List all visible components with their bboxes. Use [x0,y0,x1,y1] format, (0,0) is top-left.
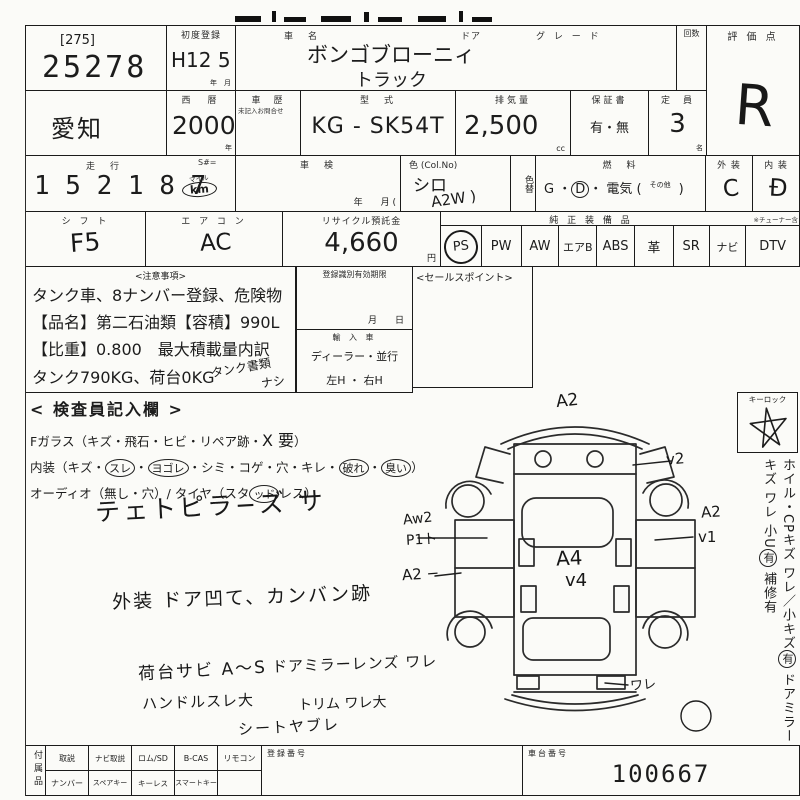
fuel-option-electric: ・ 電気 ( [589,182,641,197]
hand-circle-mark [681,701,711,731]
equip-abs: ABS [596,226,634,267]
shaken-label: 車 検 [236,156,400,171]
hand-note-bed: 荷台サビ A〜S [137,653,267,685]
pointer-a2v1 [655,537,693,540]
color-change-label: 色替 [511,160,535,208]
aircon-value: AC [199,229,232,257]
history-cell: 車 歴 未記入お問合せ [235,90,301,156]
diagram-label-left-aw2: Aw2 [402,510,433,529]
color-label: 色 (Col.No) [401,156,510,171]
expiry-unit: 月 日 [368,313,404,326]
car-name-cell: 車 名 ドア グ レ ー ド ボンゴブローニィ トラック [235,25,677,91]
fuel-option-other: その他 [642,181,679,189]
first-registration-cell: 初度登録 H12 5 年 月 [166,25,236,91]
acc-bcas: B-CAS [174,745,218,771]
interior-grade-label: 内 装 [753,156,799,171]
equip-dtv: DTV [745,226,799,267]
acc-remote: リモコン [217,745,262,771]
hand-pointer-lines [418,461,711,731]
model-cell: 型 式 KG - SK54T [300,90,456,156]
hand-note-exterior: 外装 ドア凹て、カンバン跡 [112,578,373,614]
interior-items-pre: 内装（キズ・ [30,460,105,475]
notice-line-2: 【品名】第二石油類【容積】990L [32,309,279,333]
shaken-cell: 車 検 年 月 ( [235,155,401,212]
interior-sep2: ・ [369,460,382,475]
count-cell: 回数 [676,25,707,91]
equip-pw: PW [481,226,521,267]
capacity-unit: 名 [696,143,703,153]
hand-note-trim: トリム ワレ大 [298,691,387,714]
mirror-left [476,447,510,483]
warranty-cell: 保証書 有・無 [570,90,649,156]
recycle-label: リサイクル預託金 [283,212,440,227]
diagram-label-left-a2: A2 − [401,564,439,585]
sidebar-circled-ari-1: 有 [778,650,796,668]
model-label: 型 式 [301,91,455,106]
sidebar-note-wheel: ホイル・CPキズ ワレ／小キズ [780,458,795,650]
notice-box: <注意事項> タンク車、8ナンバー登録、危険物 【品名】第二石油類【容積】990… [25,266,296,393]
score-value: R [733,73,776,141]
headrest-right [587,451,603,467]
cab-front [514,444,636,474]
warranty-label: 保証書 [571,91,648,106]
taillight-left [517,676,539,689]
lot-tag: [275] [60,33,95,48]
equip-navi: ナビ [709,226,746,267]
shift-value: F5 [69,227,101,258]
hand-note-handle: ハンドルスレ大 [142,689,255,714]
acc-smart-key: スマートキー [174,770,218,796]
shift-label: シ フ ト [26,212,145,227]
acc-rom-sd: ロム/SD [131,745,175,771]
prefecture-value: 愛知 [51,109,103,144]
equip-sr: SR [673,226,709,267]
model-value: KG - SK54T [301,114,455,139]
taillight-right [597,676,625,689]
first-registration-unit: 年 月 [210,78,231,88]
recycle-value: 4,660 [283,228,440,258]
car-name-line2: トラック [266,66,516,92]
wheel-front-left [452,485,484,517]
mileage-cell: 走 行 S#= 1 5 2 1 8 7 マイル km [25,155,236,212]
inspector-title: < 検査員記入欄 > [30,396,430,420]
fuel-option-d-circled: D [571,181,589,198]
chassis-number-box: 車台番号 100667 [522,745,800,796]
equip-leather: 革 [634,226,673,267]
hand-note-seat: シートヤブレ [238,713,341,739]
handle-options: 左H ・ 右H [297,372,412,388]
first-registration-value: H12 5 [171,48,231,72]
aircon-label: エ ア コ ン [146,212,282,227]
notice-line-4: タンク790KG、荷台0KG [32,364,215,388]
hand-note-mirror: ドアミラーレンズ ワレ [272,650,438,677]
wheel-rear-left [455,617,485,647]
page-left-edge [25,91,26,796]
shaken-unit: 年 月 ( [354,195,396,208]
interior-items-mid: ・シミ・コゲ・穴・キレ・ [189,460,339,475]
year-unit: 年 [225,143,232,153]
equip-ps-label: PS [452,238,469,254]
cutoff-title-strokes [235,6,565,22]
interior-grade-cell: 内 装 Đ [752,155,800,212]
capacity-cell: 定 員 3 名 [648,90,707,156]
headrest-left [535,451,551,467]
mileage-sub-label: S#= [198,158,216,167]
wheel-rear-right [649,616,681,648]
front-bumper-outer [501,427,649,444]
diagram-label-right-a2: A2 [700,502,721,521]
notice-title: <注意事項> [26,269,295,282]
prefecture-cell: 愛知 [25,90,167,156]
history-label: 車 歴 [236,91,300,106]
import-box: 輸 入 車 ディーラー・並行 左H ・ 右H [296,329,413,393]
displacement-cell: 排気量 2,500 cc [455,90,571,156]
registration-number-label: 登録番号 [267,748,307,759]
interior-circled-yogore: ヨゴレ [148,459,189,477]
acc-spare-key: スペアキー [88,770,132,796]
accessories-label: 付属品 [31,750,44,789]
equip-aw: AW [521,226,559,267]
sales-point-box: <セールスポイント> [412,266,533,388]
sales-point-label: <セールスポイント> [416,269,513,284]
warranty-value: 有・無 [571,117,648,136]
equip-ps: PS [441,226,481,267]
fuel-options: G ・D・ 電気 (その他) [544,178,684,198]
interior-sep1: ・ [135,460,148,475]
right-door-slit-2 [614,586,629,612]
equipment-cell: 純 正 装 備 品 ※チューナー含 PS PW AW エアB ABS 革 SR … [440,211,800,267]
dtv-note: ※チューナー含 [754,214,798,224]
exterior-grade-value: C [722,175,741,203]
acc-blank [217,770,262,796]
notice-line-1: タンク車、8ナンバー登録、危険物 [32,282,282,306]
acc-navi-manual: ナビ取説 [88,745,132,771]
keylock-box: キーロック [737,392,798,453]
capacity-label: 定 員 [649,91,706,106]
front-bumper-inner [508,434,642,449]
expiry-box: 登録識別有効期限 月 日 [296,266,413,330]
exterior-grade-cell: 外 装 C [705,155,753,212]
color-cell: 色 (Col.No) シロ A2W ) [400,155,511,212]
fuel-option-g: G ・ [544,182,571,197]
wheel-front-right [650,484,682,516]
score-cell: 評 価 点 R [706,25,800,156]
keylock-label: キーロック [738,394,797,405]
glass-hand-mark: X 要 [262,431,294,450]
ps-circled: PS [442,228,479,265]
mileage-km-label: km [190,182,210,196]
count-label: 回数 [677,26,706,39]
first-registration-label: 初度登録 [167,26,235,41]
fuel-paren-close: ) [679,182,684,197]
inspector-glass-line: Fガラス（キズ・飛石・ヒビ・リペア跡・X 要） [30,427,430,451]
right-door-slit-1 [616,539,631,566]
car-name-line1: ボンゴブローニィ [266,39,516,69]
year-cell: 西 暦 2000 年 [166,90,236,156]
exterior-grade-label: 外 装 [706,156,752,171]
cab-roof [522,498,613,547]
expiry-label: 登録識別有効期限 [297,267,412,280]
lot-cell: [275] 25278 [25,25,167,91]
inspector-interior-line: 内装（キズ・スレ・ヨゴレ・シミ・コゲ・穴・キレ・破れ・臭い） [30,457,430,477]
sidebar-note-repair: 補修有 [761,567,776,614]
equipment-row: PS PW AW エアB ABS 革 SR ナビ DTV [441,225,799,267]
interior-circled-nioi: 臭い [381,459,411,477]
chassis-number-label: 車台番号 [528,748,568,759]
registration-number-box: 登録番号 [261,745,523,796]
displacement-value: 2,500 [464,111,538,141]
truck-bed [523,618,610,660]
year-value: 2000 [172,111,236,140]
acc-number-plate: ナンバー [45,770,89,796]
history-note: 未記入お問合せ [238,105,284,115]
import-options: ディーラー・並行 [297,348,412,364]
mileage-value: 1 5 2 1 8 7 [34,171,206,201]
rear-bumper-inner [512,695,638,704]
notice-line-3: 【比重】0.800 最大積載量内訳 [32,336,270,360]
score-label: 評 価 点 [707,26,799,43]
interior-circled-sure: スレ [105,459,135,477]
glass-items: Fガラス（キズ・飛石・ヒビ・リペア跡・ [30,434,262,449]
notice-hand-note-2: ナシ [260,371,286,391]
glass-paren: ） [294,434,307,449]
accessories-label-cell: 付属品 [25,745,46,796]
diagram-label-center-v4: v4 [565,570,587,591]
year-label: 西 暦 [167,91,235,106]
shift-cell: シ フ ト F5 [25,211,146,267]
displacement-unit: cc [556,144,565,153]
grade-label: グ レ ー ド [536,27,602,42]
equip-airbag: エアB [558,226,596,267]
aircon-cell: エ ア コ ン AC [145,211,283,267]
diagram-label-top-a2: A2 [555,390,579,412]
auction-sheet: [275] 25278 初度登録 H12 5 年 月 車 名 ドア グ レ ー … [0,0,800,800]
fuel-label: 燃 料 [536,156,705,171]
recycle-cell: リサイクル預託金 4,660 円 [282,211,441,267]
diagram-label-center-a4: A4 [555,545,583,570]
sidebar-vertical-notes: ホイル・CPキズ ワレ／小キズ有 ドアミラーキズ ワレ 小U有 補修有 [744,458,796,746]
chassis-number-value: 100667 [523,760,799,788]
keylock-star-icon [748,405,790,449]
left-door-slit-2 [521,586,536,612]
sidebar-circled-ari-2: 有 [759,549,777,567]
acc-keyless: キーレス [131,770,175,796]
lot-number: 25278 [42,50,147,85]
interior-grade-value: Đ [768,174,788,203]
capacity-value: 3 [649,109,706,139]
interior-circled-yabure: 破れ [339,459,369,477]
recycle-unit: 円 [427,251,436,264]
acc-manual: 取説 [45,745,89,771]
mileage-label: 走 行 [86,157,122,172]
fuel-cell: 燃 料 G ・D・ 電気 (その他) [535,155,706,212]
diagram-label-crack: ワレ [629,673,657,694]
displacement-label: 排気量 [456,91,570,106]
diagram-label-v2: v2 [665,449,685,469]
diagram-label-left-p1: P1ト [405,528,437,550]
diagram-label-right-v1: v1 [698,528,716,546]
color-change-cell: 色替 [510,155,536,212]
import-label: 輸 入 車 [297,330,412,343]
